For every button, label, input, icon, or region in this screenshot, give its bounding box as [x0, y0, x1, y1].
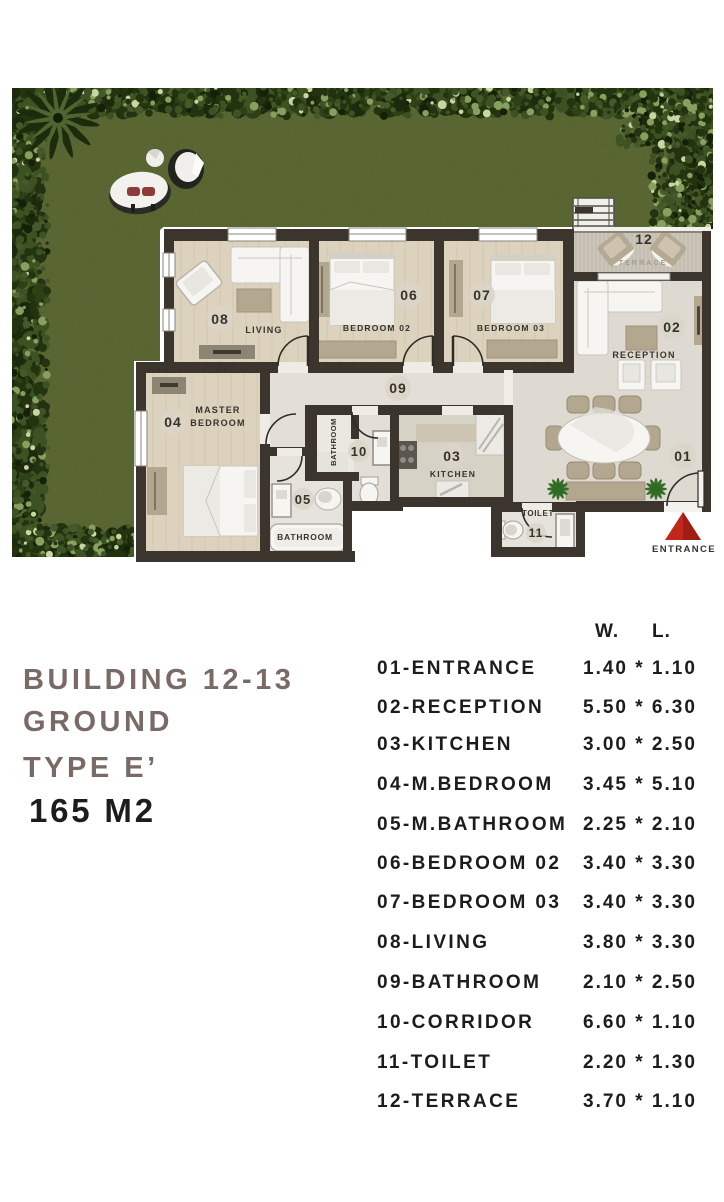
svg-text:07-BEDROOM 03: 07-BEDROOM 03 [377, 892, 561, 913]
svg-text:11: 11 [529, 526, 544, 540]
svg-text:MASTER: MASTER [195, 405, 240, 415]
svg-text:10-CORRIDOR: 10-CORRIDOR [377, 1012, 534, 1033]
svg-text:LIVING: LIVING [245, 325, 282, 335]
svg-text:L.: L. [652, 621, 671, 642]
svg-text:3.80 * 3.30: 3.80 * 3.30 [583, 932, 697, 953]
svg-text:3.45 * 5.10: 3.45 * 5.10 [583, 774, 697, 795]
svg-text:2.10 * 2.50: 2.10 * 2.50 [583, 972, 697, 993]
svg-text:3.40 * 3.30: 3.40 * 3.30 [583, 892, 697, 913]
svg-text:05-M.BATHROOM: 05-M.BATHROOM [377, 814, 567, 835]
svg-text:07: 07 [473, 287, 491, 303]
svg-text:2.25 * 2.10: 2.25 * 2.10 [583, 814, 697, 835]
svg-text:02: 02 [663, 319, 681, 335]
svg-text:05: 05 [295, 492, 311, 507]
svg-text:12: 12 [635, 231, 653, 247]
svg-text:03: 03 [443, 448, 461, 464]
svg-text:165 M2: 165 M2 [29, 792, 156, 829]
svg-text:06: 06 [400, 287, 418, 303]
svg-text:01-ENTRANCE: 01-ENTRANCE [377, 658, 536, 679]
svg-text:BEDROOM 02: BEDROOM 02 [343, 323, 411, 333]
svg-text:KITCHEN: KITCHEN [430, 469, 476, 479]
svg-text:3.00 * 2.50: 3.00 * 2.50 [583, 734, 697, 755]
svg-text:1.40 * 1.10: 1.40 * 1.10 [583, 658, 697, 679]
svg-text:BATHROOM: BATHROOM [277, 532, 333, 542]
svg-text:BATHROOM: BATHROOM [329, 418, 338, 466]
svg-text:10: 10 [351, 444, 367, 459]
svg-text:TERRACE: TERRACE [619, 258, 668, 267]
svg-text:08-LIVING: 08-LIVING [377, 932, 489, 953]
svg-text:5.50 * 6.30: 5.50 * 6.30 [583, 697, 697, 718]
svg-text:02-RECEPTION: 02-RECEPTION [377, 697, 544, 718]
svg-text:BEDROOM: BEDROOM [190, 418, 245, 428]
svg-text:BUILDING 12-13: BUILDING 12-13 [23, 664, 294, 696]
svg-text:TYPE E’: TYPE E’ [23, 752, 159, 784]
svg-text:BEDROOM 03: BEDROOM 03 [477, 323, 545, 333]
svg-text:ENTRANCE: ENTRANCE [652, 544, 716, 555]
svg-text:04-M.BEDROOM: 04-M.BEDROOM [377, 774, 554, 795]
svg-text:03-KITCHEN: 03-KITCHEN [377, 734, 513, 755]
svg-text:6.60 * 1.10: 6.60 * 1.10 [583, 1012, 697, 1033]
svg-text:RECEPTION: RECEPTION [612, 350, 675, 360]
svg-text:09: 09 [389, 380, 407, 396]
svg-text:3.40 * 3.30: 3.40 * 3.30 [583, 853, 697, 874]
svg-text:W.: W. [595, 621, 619, 642]
svg-text:09-BATHROOM: 09-BATHROOM [377, 972, 541, 993]
svg-text:04: 04 [164, 414, 182, 430]
svg-text:12-TERRACE: 12-TERRACE [377, 1091, 520, 1112]
svg-text:TOILET: TOILET [522, 509, 554, 518]
svg-text:08: 08 [211, 311, 229, 327]
svg-text:06-BEDROOM 02: 06-BEDROOM 02 [377, 853, 561, 874]
svg-text:3.70 * 1.10: 3.70 * 1.10 [583, 1091, 697, 1112]
svg-text:11-TOILET: 11-TOILET [377, 1052, 492, 1073]
svg-text:01: 01 [674, 448, 692, 464]
svg-text:GROUND: GROUND [23, 706, 173, 738]
svg-text:2.20 * 1.30: 2.20 * 1.30 [583, 1052, 697, 1073]
